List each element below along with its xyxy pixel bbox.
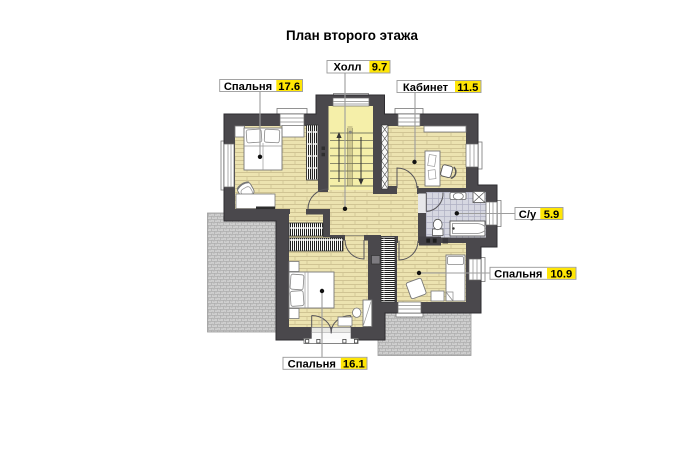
svg-text:10.9: 10.9: [550, 269, 572, 281]
svg-text:16.1: 16.1: [343, 359, 365, 371]
svg-text:17.6: 17.6: [278, 81, 300, 93]
svg-text:11.5: 11.5: [457, 82, 478, 94]
svg-text:С/у: С/у: [519, 209, 537, 221]
svg-text:Спальня: Спальня: [494, 269, 542, 281]
svg-text:Холл: Холл: [333, 62, 361, 74]
svg-text:План второго этажа: План второго этажа: [286, 28, 419, 43]
svg-text:5.9: 5.9: [544, 209, 560, 221]
svg-text:Спальня: Спальня: [224, 81, 272, 93]
svg-text:Кабинет: Кабинет: [403, 82, 449, 94]
svg-text:Спальня: Спальня: [288, 359, 336, 371]
svg-text:9.7: 9.7: [372, 62, 388, 74]
